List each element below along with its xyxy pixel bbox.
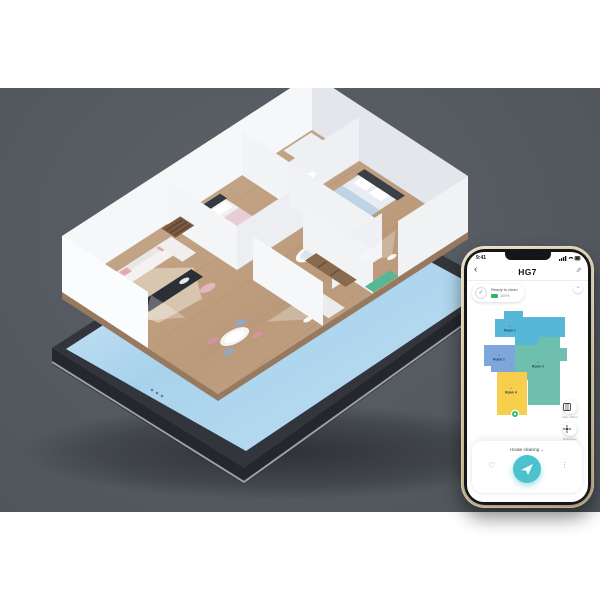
more-options-icon[interactable]: ⋮ xyxy=(561,461,568,469)
status-time: 9:41 xyxy=(476,255,486,261)
map-editing-label: Map editing xyxy=(555,415,585,419)
room-name: Room 4 xyxy=(505,391,517,395)
room-name: Room 3 xyxy=(532,365,544,369)
room-icon: ⌂ xyxy=(498,353,500,357)
paper-plane-icon xyxy=(520,462,534,476)
relocation-button[interactable] xyxy=(563,422,577,436)
wifi-icon xyxy=(569,258,573,259)
bottom-sheet: House cleaning ⌄ ♡ ⋮ xyxy=(472,441,582,493)
room-icon: ⌂ xyxy=(509,324,511,328)
status-bar: 9:41 xyxy=(467,252,588,264)
robot-status-pill[interactable]: ✓ Ready to clean 100% xyxy=(472,284,524,302)
favorite-icon[interactable]: ♡ xyxy=(488,461,495,470)
room-icon: ⌂ xyxy=(510,386,512,390)
battery-level-icon xyxy=(491,294,498,298)
handheld-phone: 9:41 ‹ HG7 ✎ ⌄ ✓ Ready to clean xyxy=(461,246,594,508)
room-icon: ⌂ xyxy=(537,360,539,364)
check-icon: ✓ xyxy=(475,287,487,299)
start-cleaning-button[interactable] xyxy=(513,455,541,483)
signal-icon xyxy=(559,256,566,261)
edit-icon[interactable]: ✎ xyxy=(574,267,582,273)
locate-icon xyxy=(563,425,571,433)
room-name: Room 1 xyxy=(504,329,516,333)
collapse-button[interactable]: ⌄ xyxy=(573,283,583,293)
map-icon xyxy=(563,403,571,411)
status-icons xyxy=(559,255,581,261)
map-editing-button[interactable] xyxy=(563,400,577,414)
app-screen: 9:41 ‹ HG7 ✎ ⌄ ✓ Ready to clean xyxy=(467,252,588,502)
cleaning-mode-selector[interactable]: House cleaning ⌄ xyxy=(472,447,582,452)
room-name: Room 2 xyxy=(493,358,505,362)
page-title: HG7 xyxy=(467,267,588,277)
battery-percent: 100% xyxy=(500,294,510,298)
header-divider xyxy=(467,280,588,281)
robot-state: Ready to clean xyxy=(491,287,518,292)
